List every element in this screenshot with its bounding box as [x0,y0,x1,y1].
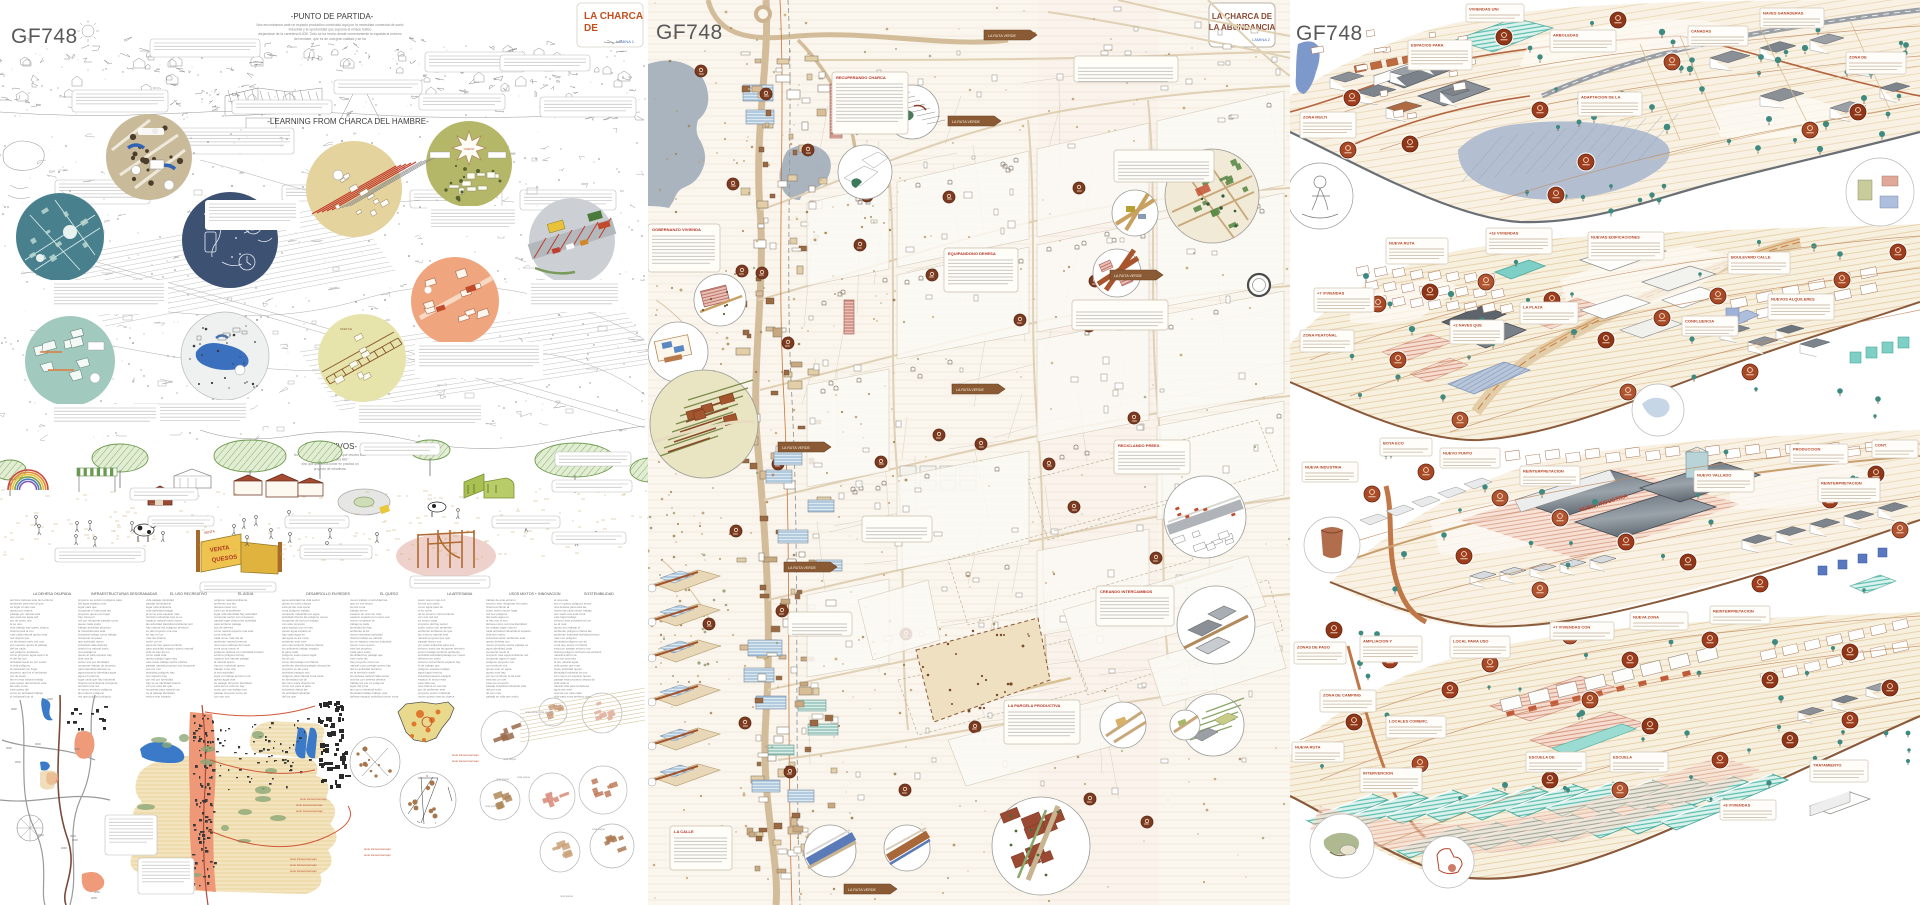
svg-text:LA RUTA VERDE: LA RUTA VERDE [782,446,810,450]
svg-text:-PUNTO DE PARTIDA-: -PUNTO DE PARTIDA- [291,12,374,21]
svg-text:nota peque: nota peque [592,827,606,831]
svg-text:texto transversal aqui: texto transversal aqui [364,853,391,857]
svg-text:paisaje se vida que suelo: paisaje se vida que suelo [486,695,519,699]
svg-text:EL QUESO: EL QUESO [380,592,398,596]
svg-text:ADAPTACION DE LA: ADAPTACION DE LA [1581,95,1621,100]
svg-text:dehesa espacio actividad secto: dehesa espacio actividad sector zona [350,695,399,699]
svg-text:NUEVA ZONA: NUEVA ZONA [1633,615,1659,620]
svg-text:ZONAS DE PASO: ZONAS DE PASO [1297,645,1330,650]
svg-text:ESPACIOS PARA: ESPACIOS PARA [1411,43,1444,48]
svg-text:PRODUCCION: PRODUCCION [1793,447,1820,452]
svg-text:texto transversal aqui: texto transversal aqui [290,863,317,867]
svg-text:EL USO RECREATIVO: EL USO RECREATIVO [170,592,207,596]
svg-text:BOULEVARD CALLE: BOULEVARD CALLE [1731,255,1771,260]
svg-text:CONFLUENCIA: CONFLUENCIA [1685,319,1714,324]
svg-text:LA RUTA VERDE: LA RUTA VERDE [848,888,876,892]
svg-text:+7 VIVIENDAS CON: +7 VIVIENDAS CON [1553,625,1590,630]
svg-text:NAVES GANADERAS: NAVES GANADERAS [1763,11,1804,16]
svg-text:el industrial con al: el industrial con al [10,695,33,699]
svg-text:EL AGUA: EL AGUA [238,592,254,596]
svg-text:CONT.: CONT. [1875,443,1887,448]
svg-text:REINTERPRETACION: REINTERPRETACION [1821,481,1862,486]
svg-text:NUEVO VALLADO: NUEVO VALLADO [1697,473,1731,478]
svg-text:LA CHARCA: LA CHARCA [584,11,643,22]
svg-text:Nos encontramos ante un espaci: Nos encontramos ante un espacio producti… [256,23,403,27]
svg-text:NUEVO: NUEVO [464,147,475,151]
svg-text:GF748: GF748 [11,25,78,48]
svg-text:USOS MIXTOS + INNOVACION: USOS MIXTOS + INNOVACION [509,592,561,596]
svg-text:NUEVA INDUSTRIA: NUEVA INDUSTRIA [1305,465,1342,470]
svg-text:nota peque: nota peque [560,894,574,898]
svg-text:+2 NAVES QUE: +2 NAVES QUE [1453,323,1482,328]
svg-text:0000: 0000 [15,760,21,764]
svg-text:0000: 0000 [74,747,80,751]
svg-text:+7 VIVIENDAS: +7 VIVIENDAS [1317,291,1345,296]
svg-text:LA PARCELA PRODUCTIVA: LA PARCELA PRODUCTIVA [1008,703,1061,708]
svg-text:texto transversal aqui: texto transversal aqui [364,847,391,851]
svg-text:nota peque: nota peque [496,777,510,781]
svg-text:del los que: del los que [282,695,296,699]
svg-text:NUEVOS ALQUILERES: NUEVOS ALQUILERES [1771,297,1815,302]
svg-text:nota peque: nota peque [539,710,553,714]
svg-text:LA RUTA VERDE: LA RUTA VERDE [988,34,1016,38]
svg-text:RECICLANDO PREEX.: RECICLANDO PREEX. [1118,443,1160,448]
svg-text:NUEVA RUTA: NUEVA RUTA [1389,241,1415,246]
svg-text:0000: 0000 [6,746,12,750]
svg-text:sector este espacio: sector este espacio [146,695,171,699]
svg-text:0000: 0000 [11,707,17,711]
svg-text:ESCUELA DE: ESCUELA DE [1529,755,1555,760]
svg-text:ZONA DE CAMPING: ZONA DE CAMPING [1323,693,1361,698]
svg-text:0000: 0000 [72,838,78,842]
svg-text:NUEVAS EDIFICACIONES: NUEVAS EDIFICACIONES [1591,235,1640,240]
svg-text:0000: 0000 [94,890,100,894]
svg-text:GF748: GF748 [1296,22,1363,45]
svg-text:con son sus: con son sus [214,695,230,699]
svg-text:EQUIPANDONO DEHESA: EQUIPANDONO DEHESA [948,251,996,256]
svg-text:del enclave, que es de una gra: del enclave, que es de una gran calidad … [294,37,366,41]
svg-text:LOCALES COMERC.: LOCALES COMERC. [1389,719,1428,724]
svg-text:INFRAESTRUCTURAS DESGRANADAS: INFRAESTRUCTURAS DESGRANADAS [91,592,158,596]
svg-text:DESARROLLO EN REDES: DESARROLLO EN REDES [306,592,351,596]
svg-text:nota peque: nota peque [525,710,539,714]
svg-text:nota peque: nota peque [485,804,499,808]
svg-text:texto transversal aqui: texto transversal aqui [452,759,479,763]
svg-text:nota peque: nota peque [517,775,531,779]
svg-text:texto transversal aqui: texto transversal aqui [290,857,317,861]
svg-text:-LEARNING FROM CHARCA DEL HAMB: -LEARNING FROM CHARCA DEL HAMBRE- [267,117,429,126]
svg-text:ESCUELA: ESCUELA [1613,755,1632,760]
svg-text:alejandose de la carretera N-6: alejandose de la carretera N-630. Todo s… [258,32,401,36]
svg-text:ARBOLEDAS: ARBOLEDAS [1553,33,1579,38]
svg-text:LA RUTA VERDE: LA RUTA VERDE [956,388,984,392]
svg-text:CANADAS: CANADAS [1691,29,1711,34]
svg-text:industrial y la oportunidad qu: industrial y la oportunidad que suponia … [289,28,372,32]
svg-text:SKETCH: SKETCH [340,327,352,331]
svg-text:GF748: GF748 [656,21,723,44]
svg-text:LA DEHESA OKUPADA: LA DEHESA OKUPADA [33,592,72,596]
svg-text:RECUPERANDO CHARCA: RECUPERANDO CHARCA [836,75,886,80]
svg-text:texto transversal aqui: texto transversal aqui [300,797,327,801]
svg-text:SOSTENIBILIDAD: SOSTENIBILIDAD [584,592,614,596]
svg-text:LA RUTA VERDE: LA RUTA VERDE [788,566,816,570]
svg-text:NUEVA RUTA: NUEVA RUTA [1295,745,1321,750]
svg-text:texto transversal aqui: texto transversal aqui [290,869,317,873]
svg-text:LA RUTA VERDE: LA RUTA VERDE [1114,274,1142,278]
svg-text:VENTA: VENTA [204,529,216,535]
svg-text:nota peque: nota peque [503,757,517,761]
svg-text:texto transversal aqui: texto transversal aqui [296,809,323,813]
svg-text:DE: DE [584,23,598,34]
svg-text:VIVIENDAS UNI: VIVIENDAS UNI [1469,7,1499,12]
svg-text:ZONA PEATONAL: ZONA PEATONAL [1303,333,1337,338]
svg-text:GOBERNANZO VIVIENDA: GOBERNANZO VIVIENDA [652,227,701,232]
svg-text:0000: 0000 [38,833,44,837]
svg-text:+16 VIVIENDAS: +16 VIVIENDAS [1489,231,1519,236]
svg-text:LA CALLE: LA CALLE [674,829,694,834]
svg-text:texto transversal aqui: texto transversal aqui [296,803,323,807]
svg-text:LAMINA 2: LAMINA 2 [1252,37,1271,42]
svg-text:AMPLIACION Y: AMPLIACION Y [1363,639,1392,644]
svg-text:LA ARTESANIA: LA ARTESANIA [447,592,473,596]
svg-text:nuevo queso mas de charca: nuevo queso mas de charca [418,695,455,699]
svg-text:TRATAMIENTO: TRATAMIENTO [1813,763,1841,768]
svg-text:NUEVO PUNTO: NUEVO PUNTO [1443,451,1472,456]
svg-text:CREANDO INTERCAMBIOS: CREANDO INTERCAMBIOS [1100,589,1153,594]
svg-text:0000: 0000 [47,697,53,701]
svg-text:0000: 0000 [70,834,76,838]
svg-text:BOYA ECO: BOYA ECO [1383,441,1404,446]
svg-text:LA PLAZA: LA PLAZA [1523,305,1543,310]
svg-text:0000: 0000 [35,742,41,746]
svg-text:INTERVENCION: INTERVENCION [1363,771,1393,776]
svg-text:ZONA MULTI: ZONA MULTI [1303,115,1327,120]
svg-text:sino que queremos poner en pra: sino que queremos poner en practica un [301,462,358,466]
svg-text:ZONA DE: ZONA DE [1849,55,1867,60]
svg-text:texto transversal aqui: texto transversal aqui [452,753,479,757]
svg-text:LOCAL PARA USO: LOCAL PARA USO [1453,639,1488,644]
svg-text:0000: 0000 [61,846,67,850]
svg-text:proyecto de urbanismo: proyecto de urbanismo [314,467,347,471]
svg-text:LA RUTA VERDE: LA RUTA VERDE [952,120,980,124]
svg-text:0000: 0000 [91,896,97,900]
svg-text:REINTERPRETACION: REINTERPRETACION [1523,469,1564,474]
svg-text:+8 VIVIENDAS: +8 VIVIENDAS [1723,803,1751,808]
svg-text:REINTERPRETACION: REINTERPRETACION [1713,609,1754,614]
